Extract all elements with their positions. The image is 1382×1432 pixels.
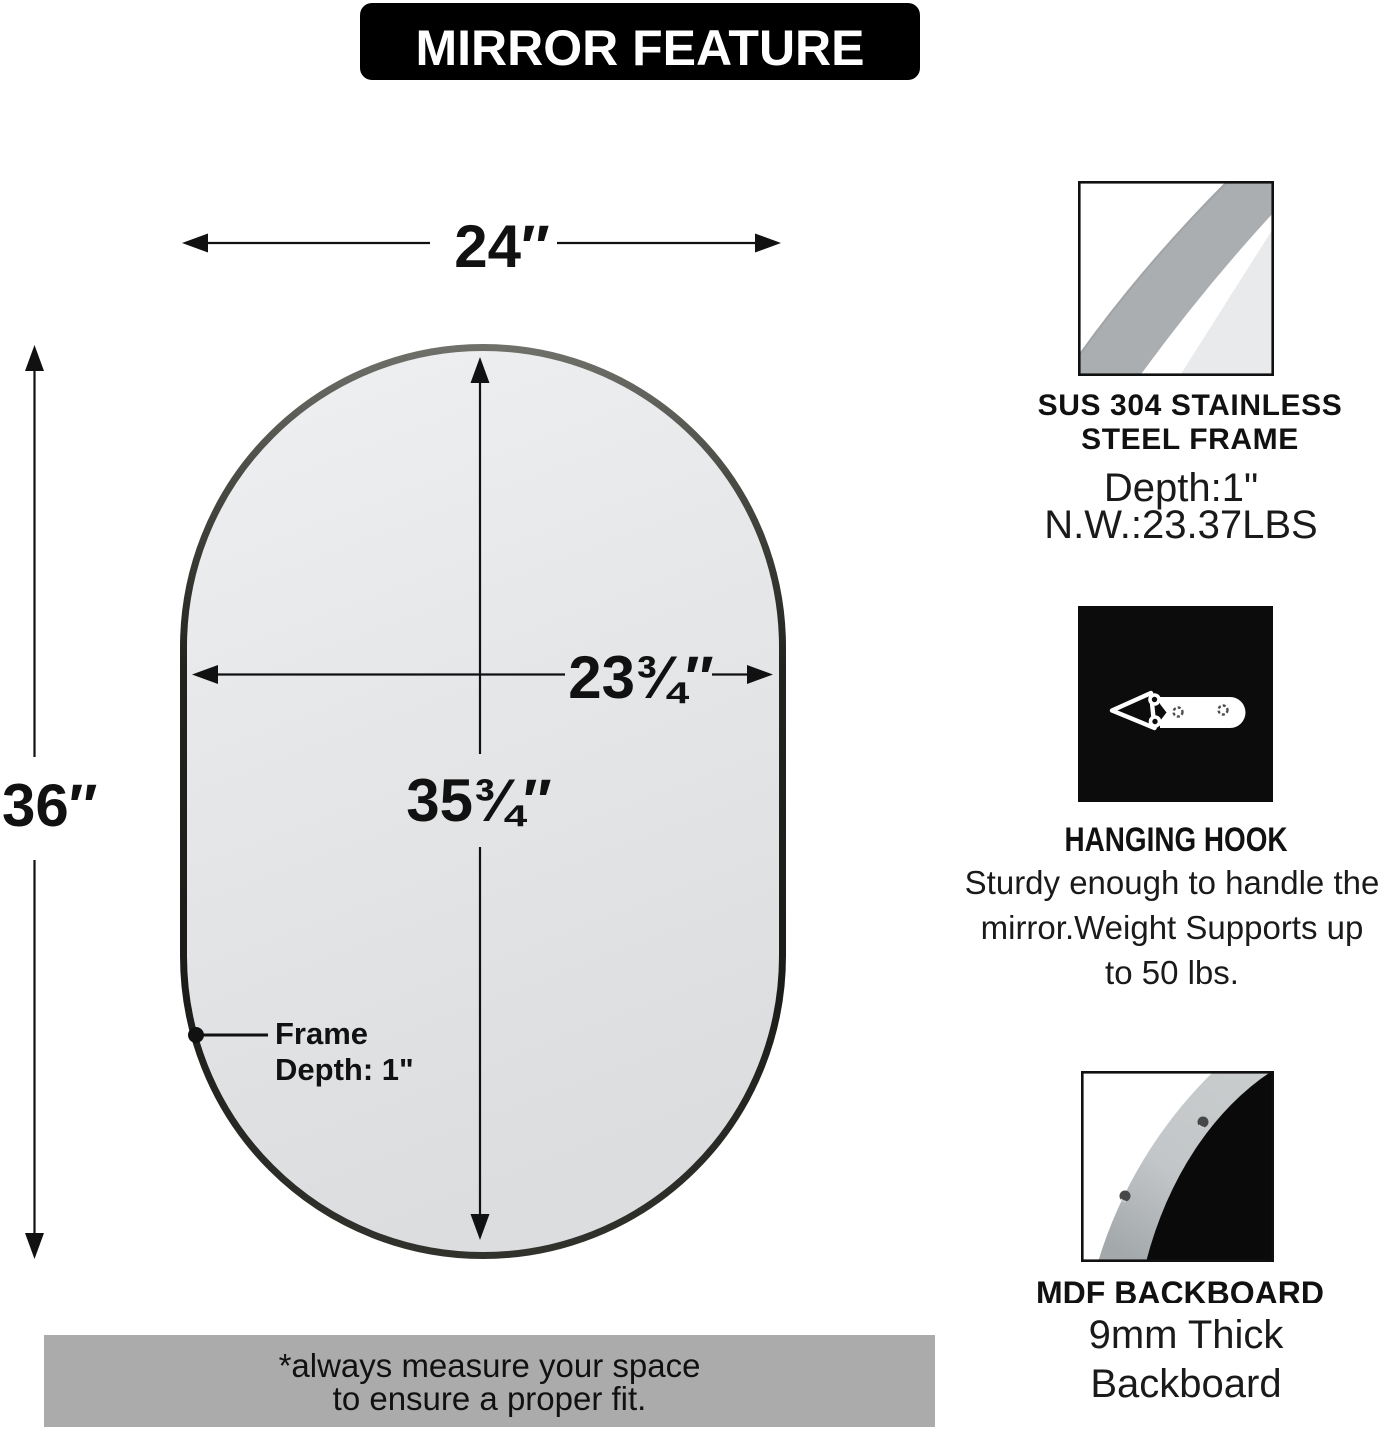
svg-text:23¾″: 23¾″: [568, 644, 714, 711]
svg-text:Depth: 1": Depth: 1": [275, 1052, 414, 1087]
svg-text:35¾″: 35¾″: [406, 767, 552, 834]
svg-text:24″: 24″: [454, 213, 549, 280]
svg-text:Frame: Frame: [275, 1016, 368, 1051]
svg-text:36″: 36″: [2, 772, 97, 839]
